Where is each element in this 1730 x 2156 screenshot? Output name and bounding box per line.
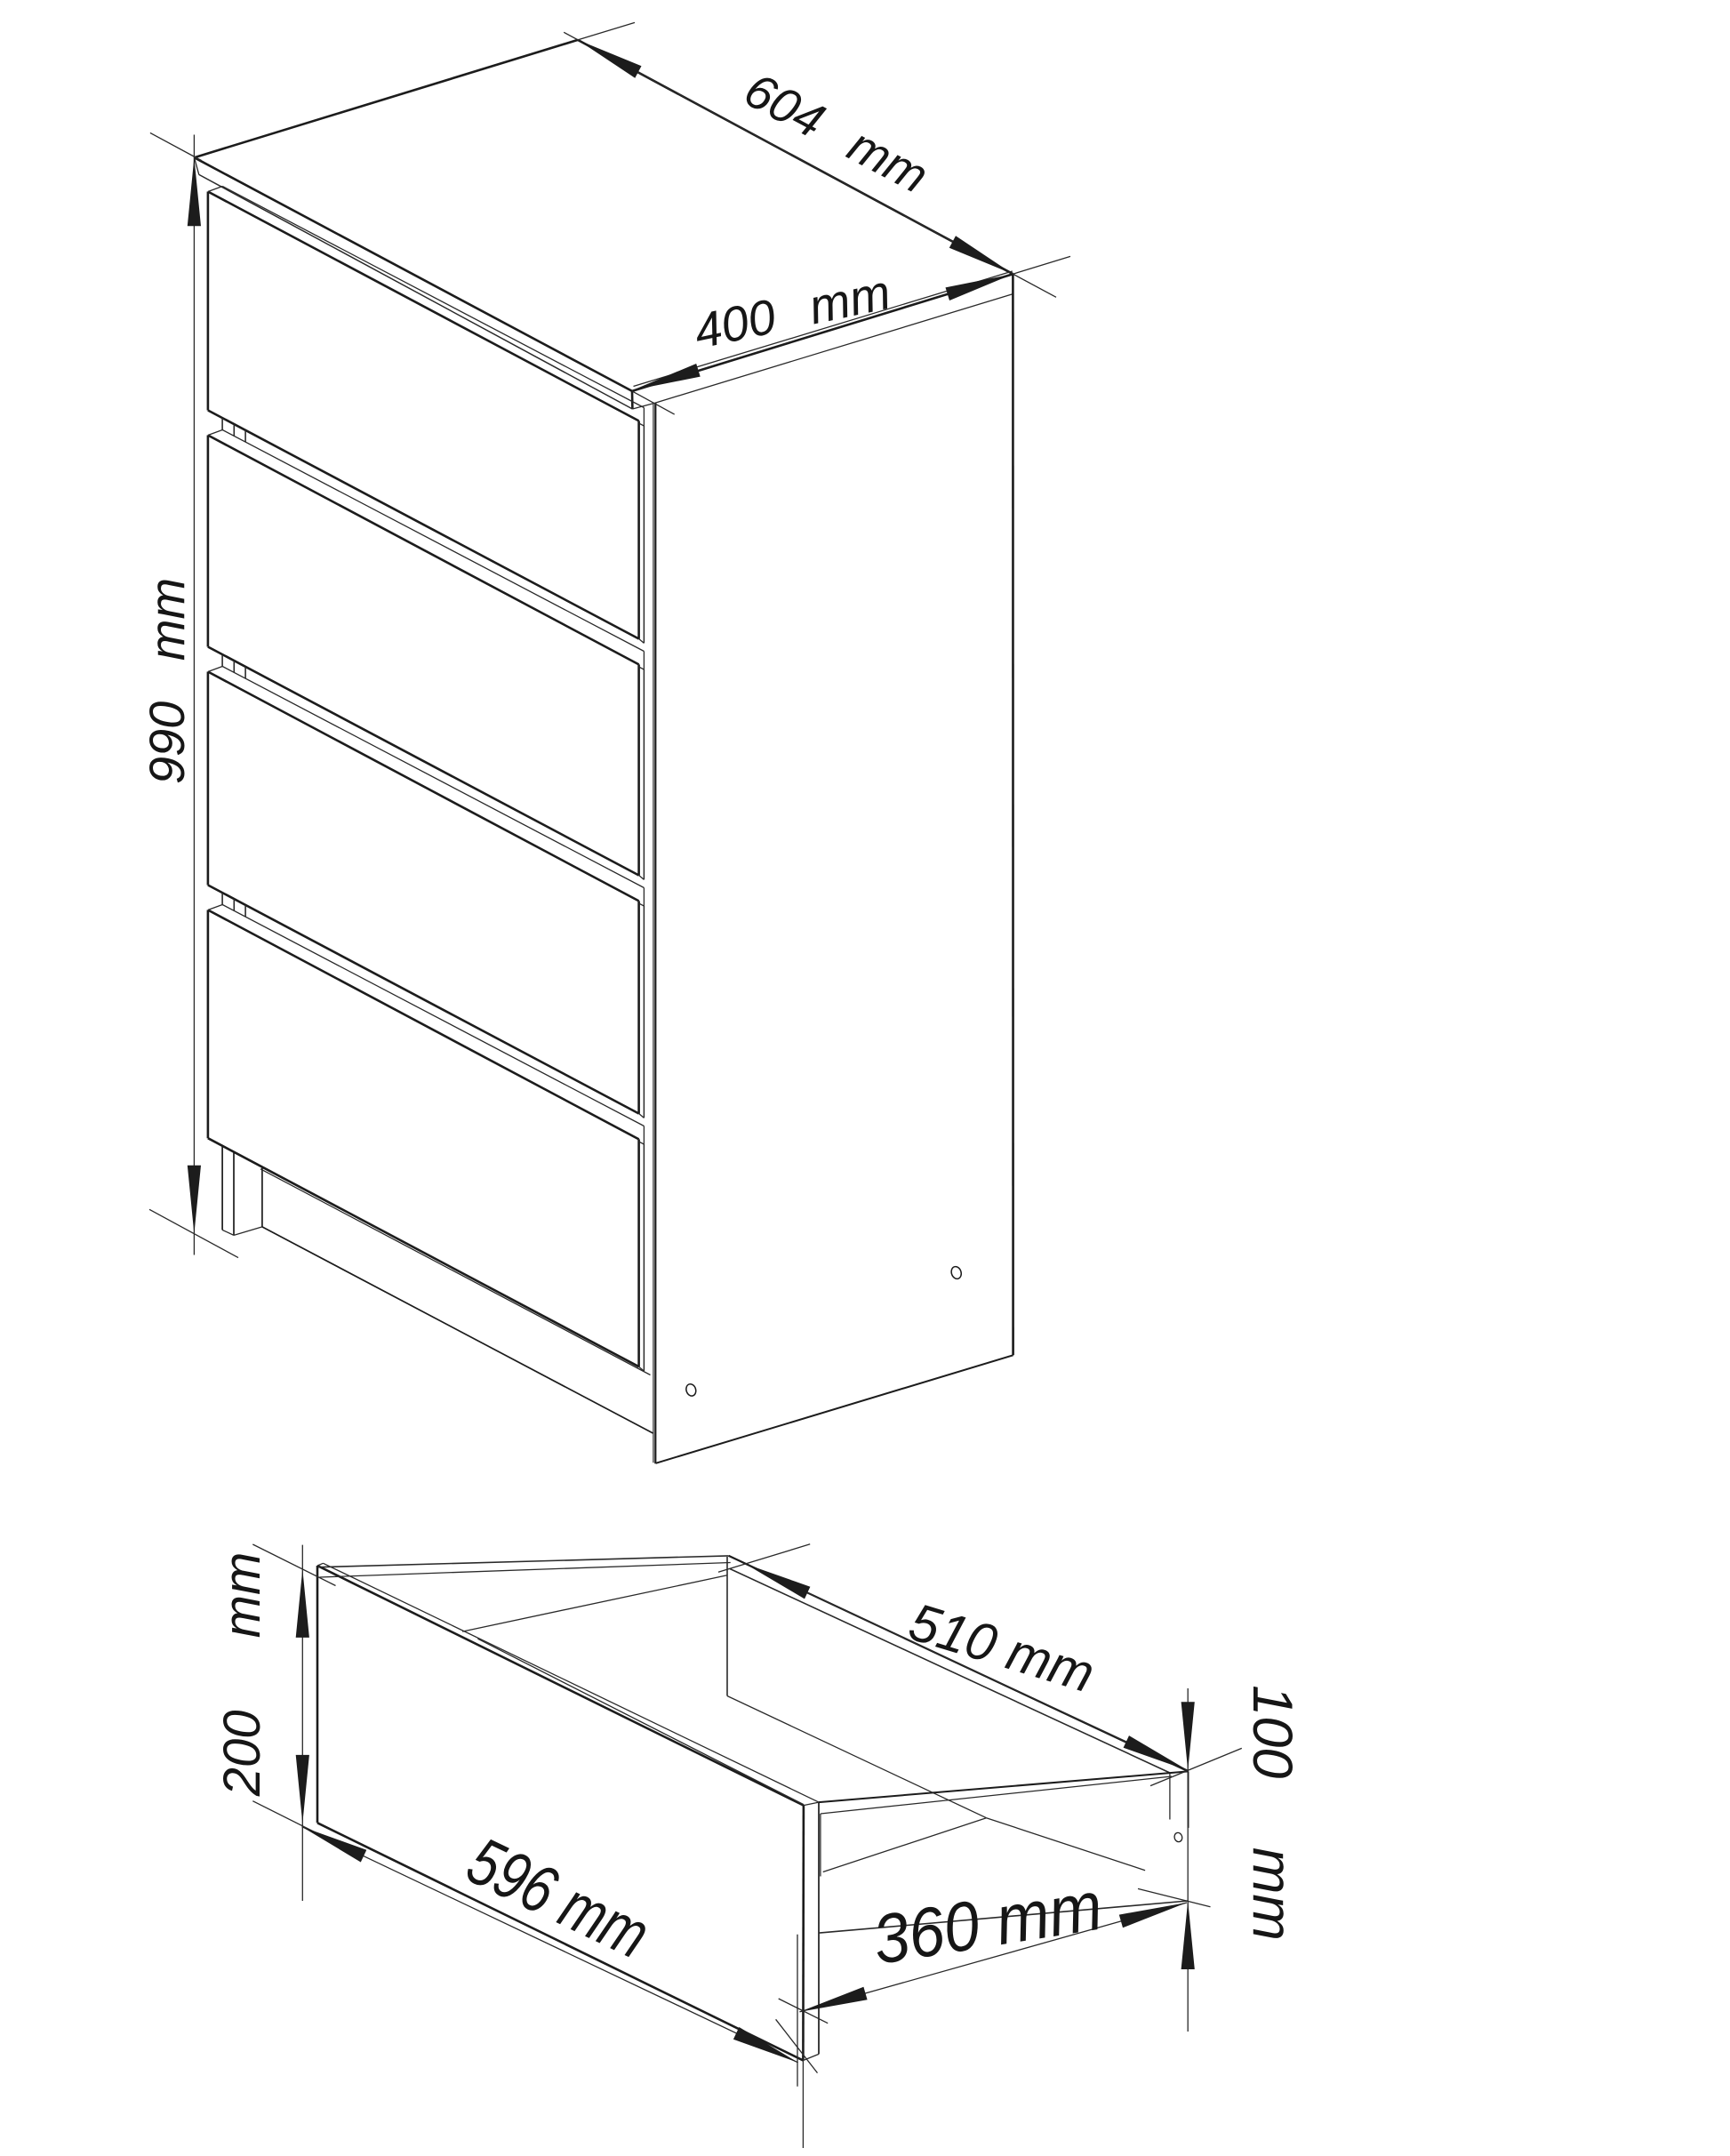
svg-text:200 mm: 200 mm: [213, 1552, 271, 1798]
svg-text:100 mm: 100 mm: [1241, 1685, 1303, 1941]
svg-text:990 mm: 990 mm: [139, 578, 195, 784]
